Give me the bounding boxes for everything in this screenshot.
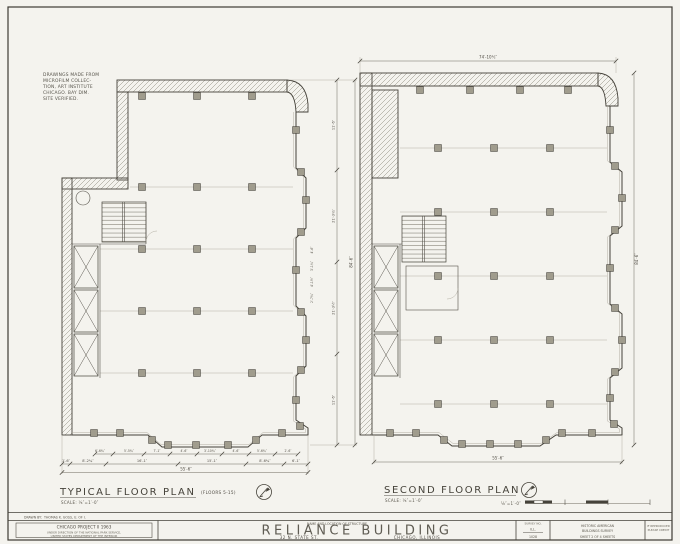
second-top-wall — [360, 73, 598, 86]
dim-label: 6′-1″ — [292, 459, 301, 463]
sheet-drawing: DRAWINGS MADE FROM MICROFILM COLLEC- TIO… — [0, 0, 680, 544]
scale-bar-segment — [543, 501, 552, 504]
scale-bar-segment — [525, 501, 534, 504]
dim-label: 11′-6″ — [332, 119, 336, 130]
dim-label: 2′-7¾″ — [310, 292, 314, 303]
drawn-by-label: DRAWN BY: — [24, 516, 42, 520]
dim-label: 8′-2¾″ — [82, 459, 94, 463]
survey-line: ILL. — [530, 528, 536, 532]
drawn-by-row: DRAWN BY: THOMAS K. GOSS, U. OF I. — [24, 516, 86, 520]
dim-label: 4′-1½″ — [310, 276, 314, 287]
dim-label: 4′-6″ — [181, 449, 189, 453]
dim-label: 1′-6″ — [62, 459, 71, 463]
dim-label: 4′-6″ — [233, 449, 241, 453]
dim-label: 15′-1″ — [207, 459, 218, 463]
dim-label: 3′-1¾″ — [310, 260, 314, 271]
dim-top: 74′-10½″ — [479, 55, 497, 60]
project-line: CHICAGO PROJECT II 1963 — [57, 525, 112, 530]
typical-stair — [102, 202, 146, 242]
dim-label: 21′-3¾″ — [332, 208, 336, 222]
project-credit: CHICAGO PROJECT II 1963 UNDER DIRECTION … — [47, 525, 121, 539]
habs-sheet: DRAWINGS MADE FROM MICROFILM COLLEC- TIO… — [0, 0, 680, 544]
dim-right: 84′-6″ — [634, 253, 639, 265]
note-line: SITE VERIFIED. — [43, 96, 78, 102]
habs-line: HISTORIC AMERICAN — [581, 524, 615, 528]
dim-label: 8′-6¾″ — [259, 459, 271, 463]
plan-floors-note: (FLOORS 5-15) — [201, 490, 236, 495]
habs-line: BUILDINGS SURVEY — [582, 529, 613, 533]
typical-court-wall — [117, 92, 128, 180]
dim-label: 6′-6¾″ — [95, 449, 106, 453]
building-address: 32 N. STATE ST. — [280, 535, 319, 540]
note-line: DRAWINGS MADE FROM — [43, 72, 99, 78]
survey-header: SURVEY NO. — [525, 522, 542, 526]
dim-label: 4′-6″ — [310, 246, 314, 254]
dim-label: 5′-6¾″ — [257, 449, 268, 453]
dim-label: 21′-3½″ — [332, 300, 336, 314]
credit-box: IF REPRODUCED PLEASE CREDIT — [647, 524, 670, 532]
habs-box: HISTORIC AMERICAN BUILDINGS SURVEY SHEET… — [580, 524, 615, 539]
building-city: CHICAGO, ILLINOIS — [394, 535, 440, 540]
second-court-block — [372, 90, 398, 178]
project-line: UNITED STATES DEPARTMENT OF THE INTERIOR — [51, 534, 118, 538]
dim-label: 2′-6″ — [285, 449, 293, 453]
scale-bar-segment — [586, 501, 608, 504]
dim-label: 3′-10¾″ — [204, 449, 217, 453]
plan-title: TYPICAL FLOOR PLAN — [59, 487, 196, 498]
typical-top-wall — [117, 80, 287, 92]
dim-label: 11′-6″ — [332, 394, 336, 405]
second-stair — [402, 216, 446, 262]
typical-left-wall — [62, 178, 72, 435]
dim-label: 16′-1″ — [137, 459, 148, 463]
graphic-scale-label: ⅛″=1′-0″ — [501, 501, 521, 506]
plan-scale-note: SCALE: ⅛″=1′-0″ — [61, 500, 99, 505]
structure-name-box: NAME AND LOCATION OF STRUCTURE RELIANCE … — [261, 522, 452, 540]
plan-title: SECOND FLOOR PLAN — [384, 485, 520, 496]
note-line: MICROFILM COLLEC- — [43, 78, 92, 84]
dim-label: 7′-1″ — [154, 449, 162, 453]
note-line: TION, ART INSTITUTE — [42, 84, 93, 90]
dim-bottom: 55′-6″ — [492, 456, 504, 461]
dim-label: 5′-5¾″ — [124, 449, 135, 453]
survey-line: 1028 — [529, 535, 537, 539]
plan-scale-note: SCALE: ⅛″=1′-0″ — [385, 498, 423, 503]
drawn-by-value: THOMAS K. GOSS, U. OF I. — [43, 516, 86, 520]
second-left-wall — [360, 73, 372, 435]
note-line: CHICAGO. BAY DIM. — [43, 90, 89, 96]
dim-overall-right: 84′-6″ — [349, 256, 354, 268]
credit-line: PLEASE CREDIT — [648, 528, 670, 532]
sheet-count: SHEET 2 OF 4 SHEETS — [580, 535, 615, 539]
dim-overall-bottom: 55′-6″ — [180, 467, 192, 472]
